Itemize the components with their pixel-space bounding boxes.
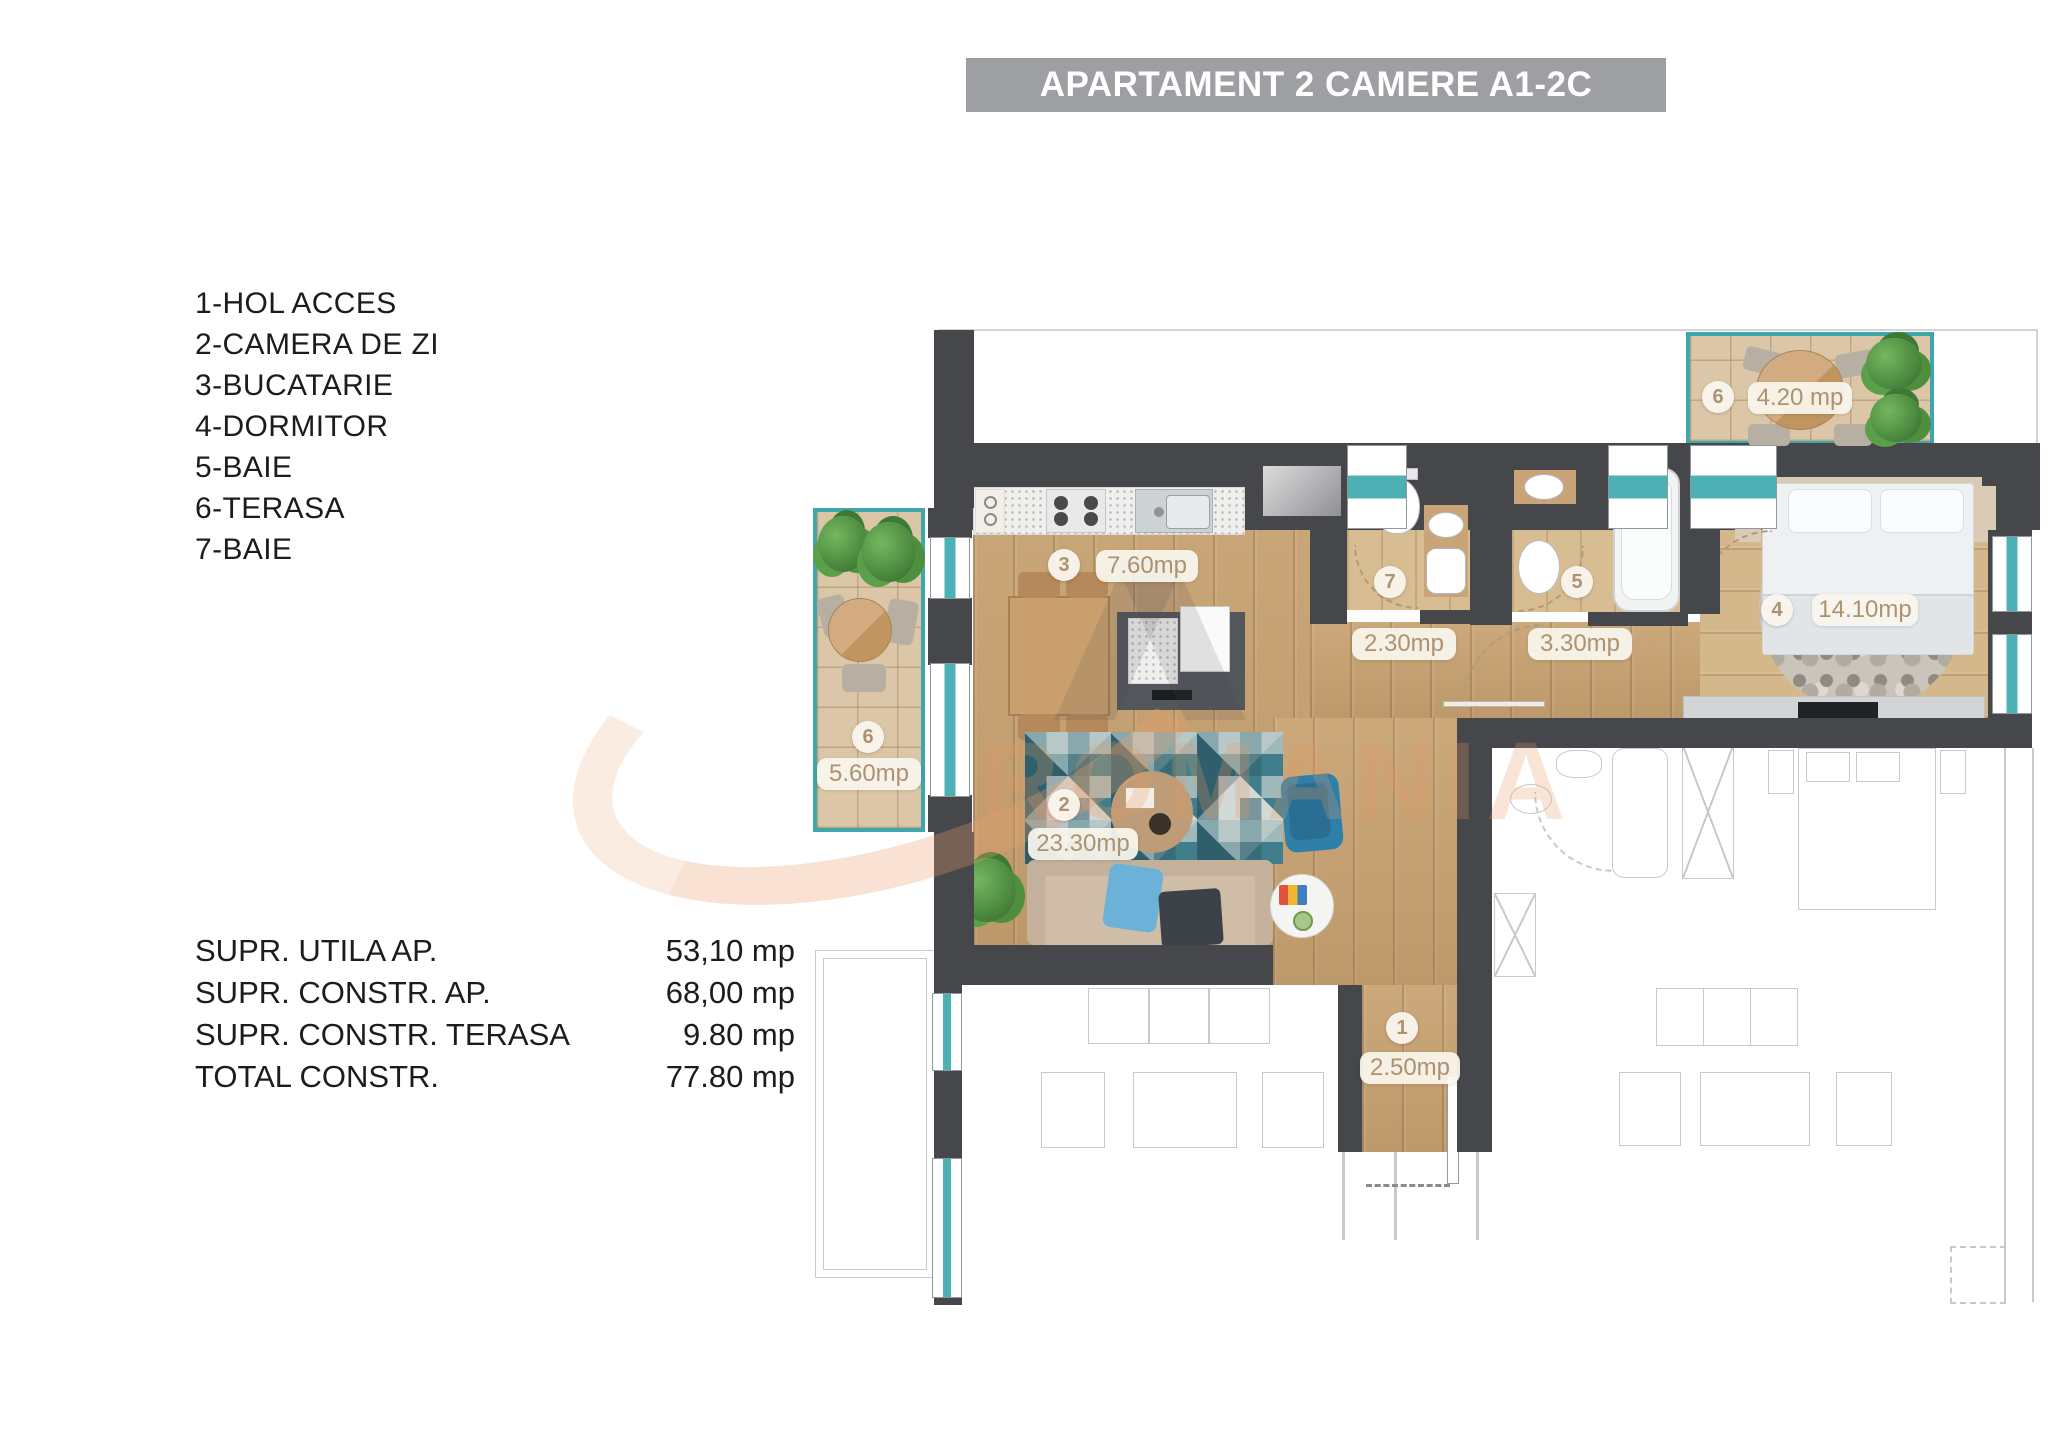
wall-segment <box>1420 610 1470 624</box>
neighbor-sofa <box>1088 988 1270 1044</box>
legend-item: 4-DORMITOR <box>195 406 439 447</box>
knob <box>984 513 997 526</box>
stat-value: 9.80 mp <box>585 1017 795 1053</box>
legend-item: 5-BAIE <box>195 447 439 488</box>
stat-value: 68,00 mp <box>585 975 795 1011</box>
side-table-book <box>1279 885 1307 905</box>
side-table-bowl <box>1293 911 1313 931</box>
surface-stats: SUPR. UTILA AP. 53,10 mp SUPR. CONSTR. A… <box>195 930 795 1098</box>
wall-segment <box>934 330 974 508</box>
neighbor-wall-line <box>2032 748 2034 1302</box>
entry-threshold <box>1366 1184 1450 1187</box>
stat-row: SUPR. CONSTR. TERASA 9.80 mp <box>195 1014 795 1056</box>
window <box>1992 536 2032 612</box>
neighbor-sofa-seat <box>1656 988 1704 1046</box>
neighbor-balcony-inner <box>823 958 927 1270</box>
wall-segment <box>1338 985 1362 1152</box>
stat-label: TOTAL CONSTR. <box>195 1059 585 1095</box>
room-badge-baie7: 7 <box>1374 566 1406 598</box>
room-area-terasa-top: 4.20 mp <box>1748 382 1852 414</box>
plant-terrace-top <box>1870 394 1922 442</box>
room-badge-bucatarie: 3 <box>1048 549 1080 581</box>
window <box>932 993 962 1071</box>
neighbor-nightstand <box>1940 750 1966 794</box>
floor-plan-page: APARTAMENT 2 CAMERE A1-2C 1-HOL ACCES 2-… <box>0 0 2048 1442</box>
stat-row: SUPR. CONSTR. AP. 68,00 mp <box>195 972 795 1014</box>
wall-segment <box>928 508 972 538</box>
bath5-sink <box>1524 474 1564 500</box>
neighbor-armchair <box>1619 1072 1681 1146</box>
neighbor-wall-line <box>2004 748 2006 1302</box>
tv <box>1798 702 1878 718</box>
neighbor-pillow <box>1806 752 1850 782</box>
legend-item: 1-HOL ACCES <box>195 283 439 324</box>
window <box>1992 634 2032 714</box>
room-area-hol: 2.50mp <box>1360 1052 1460 1084</box>
wall-segment <box>1680 530 1720 614</box>
neighbor-shower <box>1682 745 1734 879</box>
room-area-camera-de-zi: 23.30mp <box>1028 828 1138 860</box>
neighbor-sofa-seat <box>1148 988 1210 1044</box>
terrace-chair <box>1834 424 1872 446</box>
room-legend: 1-HOL ACCES 2-CAMERA DE ZI 3-BUCATARIE 4… <box>195 283 439 570</box>
wall-segment <box>1310 530 1347 624</box>
page-title: APARTAMENT 2 CAMERE A1-2C <box>966 58 1666 112</box>
neighbor-armchair <box>1041 1072 1105 1148</box>
room-badge-terasa-top: 6 <box>1702 381 1734 413</box>
watermark-text: ROMANIA <box>980 718 1576 845</box>
window <box>1347 445 1407 529</box>
knob <box>984 496 997 509</box>
bath7-sink <box>1428 512 1464 538</box>
stat-label: SUPR. CONSTR. AP. <box>195 975 585 1011</box>
neighbor-sofa-seat <box>1208 988 1270 1044</box>
stat-value: 53,10 mp <box>585 933 795 969</box>
room-area-baie7: 2.30mp <box>1352 628 1456 660</box>
legend-item: 2-CAMERA DE ZI <box>195 324 439 365</box>
room-badge-hol: 1 <box>1386 1012 1418 1044</box>
entry-step-line <box>1476 1152 1479 1240</box>
entry-step-line <box>1394 1152 1397 1240</box>
entry-step-line <box>1342 1152 1345 1240</box>
neighbor-wardrobe <box>1494 893 1536 977</box>
sofa-pillow-blue <box>1102 863 1164 934</box>
room-badge-dormitor: 4 <box>1761 594 1793 626</box>
sofa-armrest <box>1027 860 1045 945</box>
side-table <box>1270 874 1334 938</box>
room-area-dormitor: 14.10mp <box>1812 594 1918 626</box>
room-badge-baie5: 5 <box>1561 566 1593 598</box>
wall-segment <box>1588 612 1688 626</box>
wall-segment <box>1470 530 1512 625</box>
neighbor-tub <box>1612 748 1668 878</box>
stove-icon <box>1046 489 1106 533</box>
sink-icon <box>1135 489 1213 533</box>
neighbor-sofa-seat <box>1088 988 1150 1044</box>
neighbor-nightstand <box>1768 750 1794 794</box>
fridge <box>1263 466 1341 516</box>
neighbor-armchair <box>1262 1072 1324 1148</box>
room-badge-terasa-left: 6 <box>852 721 884 753</box>
stat-row: TOTAL CONSTR. 77.80 mp <box>195 1056 795 1098</box>
room-area-bucatarie: 7.60mp <box>1096 550 1198 582</box>
stat-label: SUPR. UTILA AP. <box>195 933 585 969</box>
legend-item: 3-BUCATARIE <box>195 365 439 406</box>
sofa-throw-dark <box>1158 888 1224 948</box>
bed-pillow <box>1880 489 1964 533</box>
neighbor-table <box>1133 1072 1237 1148</box>
terrace-door-window <box>1690 445 1777 529</box>
legend-item: 7-BAIE <box>195 529 439 570</box>
stat-row: SUPR. UTILA AP. 53,10 mp <box>195 930 795 972</box>
bath7-basin <box>1426 548 1466 594</box>
plant-terrace-top <box>1866 338 1922 390</box>
window <box>932 1158 962 1298</box>
neighbor-armchair <box>1836 1072 1892 1146</box>
bed-pillow <box>1788 489 1872 533</box>
room-area-terasa-left: 5.60mp <box>817 758 921 790</box>
stat-label: SUPR. CONSTR. TERASA <box>195 1017 585 1053</box>
kitchen-cabinet-knobs <box>975 489 1005 533</box>
neighbor-table <box>1700 1072 1810 1146</box>
neighbor-dashed-rect <box>1950 1246 2006 1304</box>
neighbor-sofa-seat <box>1750 988 1798 1046</box>
neighbor-sofa-seat <box>1703 988 1751 1046</box>
window <box>1608 445 1668 529</box>
neighbor-pillow <box>1856 752 1900 782</box>
stat-value: 77.80 mp <box>585 1059 795 1095</box>
room-area-baie5: 3.30mp <box>1528 628 1632 660</box>
wall-segment <box>934 945 1273 985</box>
corridor-door-leaf <box>1443 701 1545 707</box>
room-badge-camera-de-zi: 2 <box>1048 789 1080 821</box>
legend-item: 6-TERASA <box>195 488 439 529</box>
neighbor-sofa-right <box>1656 988 1798 1046</box>
